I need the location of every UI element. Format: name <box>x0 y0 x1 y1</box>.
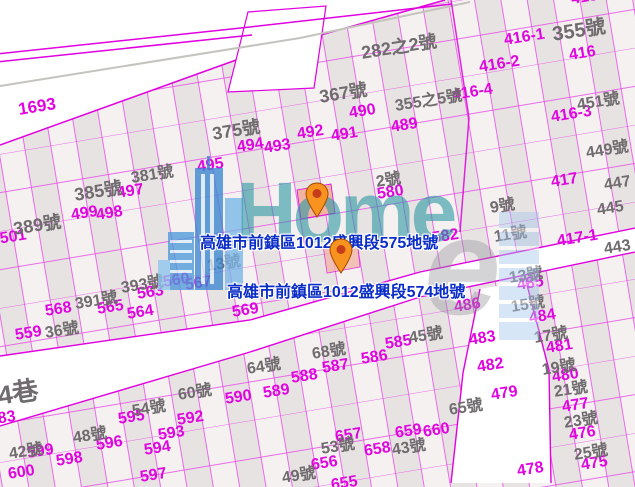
house-number-label: 4巷 <box>0 377 40 409</box>
map-pin[interactable] <box>304 182 330 218</box>
cadastral-map[interactable]: 1693250149549449349749949849249149048941… <box>0 0 635 487</box>
selected-parcel-address-574: 高雄市前鎮區1012盛興段574地號 <box>227 278 465 302</box>
parcel-number-label: 655 <box>330 474 359 487</box>
map-pin[interactable] <box>328 238 354 274</box>
selected-parcel-address-575: 高雄市前鎮區1012盛興段575地號 <box>200 229 438 253</box>
